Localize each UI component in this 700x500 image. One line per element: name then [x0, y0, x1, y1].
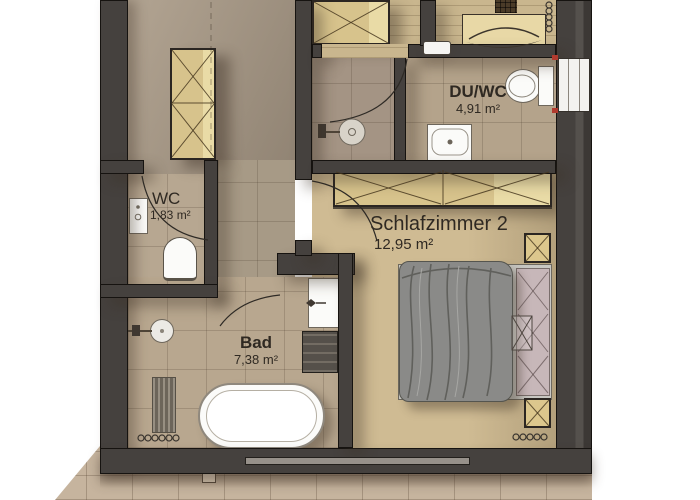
wall-duwc-north-left	[312, 44, 322, 58]
bed-headboard-panel	[516, 268, 550, 396]
wall-left-exterior	[100, 0, 128, 472]
wardrobe-top-room	[312, 0, 390, 45]
bathtub-inner	[206, 390, 317, 442]
vanity-counter	[462, 14, 546, 47]
washbasin-du-wc	[427, 124, 472, 161]
room-name: Bad	[228, 333, 284, 353]
round-washbasin	[150, 319, 174, 343]
room-label-schlafzimmer-2: Schlafzimmer 2 12,95 m²	[370, 213, 502, 253]
wall-shower-east	[394, 56, 406, 162]
wall-washbasin-bad	[308, 278, 340, 328]
wall-hall-wc	[100, 160, 144, 174]
window-right	[558, 58, 590, 112]
room-name: DU/WC	[440, 82, 516, 102]
wardrobe-bedroom	[333, 169, 552, 207]
room-name: Schlafzimmer 2	[370, 213, 502, 236]
floor-plan: DU/WC 4,91 m² Schlafzimmer 2 12,95 m² WC…	[0, 0, 700, 500]
wall-bedroom-west-lower	[295, 240, 312, 256]
wall-stub-top	[420, 0, 436, 46]
room-name: WC	[150, 189, 206, 209]
wall-wc-south	[100, 284, 218, 298]
window-marker-top	[552, 55, 558, 60]
floor-door-gap	[322, 44, 408, 58]
room-label-du-wc: DU/WC 4,91 m²	[440, 82, 516, 116]
toilet-wc	[163, 237, 197, 281]
wall-wc-east	[204, 160, 218, 298]
wall-duwc-south	[312, 160, 556, 174]
room-label-bad: Bad 7,38 m²	[228, 333, 284, 367]
dark-radiator-bad	[302, 331, 338, 373]
towel-radiator	[152, 377, 176, 433]
wall-bedroom-west-upper	[295, 0, 312, 180]
nightstand-bottom	[524, 398, 551, 428]
hand-washbasin-wc	[129, 198, 148, 234]
wall-bad-east	[338, 253, 353, 448]
floor-hallway	[128, 0, 312, 174]
room-area: 7,38 m²	[228, 353, 284, 368]
hall-closet	[170, 48, 216, 160]
floor-shower	[312, 56, 404, 162]
room-label-wc: WC 1,83 m²	[150, 189, 206, 222]
window-marker-bottom	[552, 108, 558, 113]
bed-blanket	[399, 261, 513, 402]
room-area: 1,83 m²	[150, 209, 206, 223]
shower-control	[318, 124, 326, 138]
terrace-shadow	[100, 472, 592, 488]
hatch-tile-square	[495, 0, 517, 13]
toilet-du-wc-tank	[538, 66, 554, 106]
window-bottom-band	[245, 457, 470, 465]
room-area: 12,95 m²	[370, 236, 502, 253]
room-area: 4,91 m²	[440, 102, 516, 117]
door-panel	[423, 41, 451, 55]
nightstand-top	[524, 233, 551, 263]
